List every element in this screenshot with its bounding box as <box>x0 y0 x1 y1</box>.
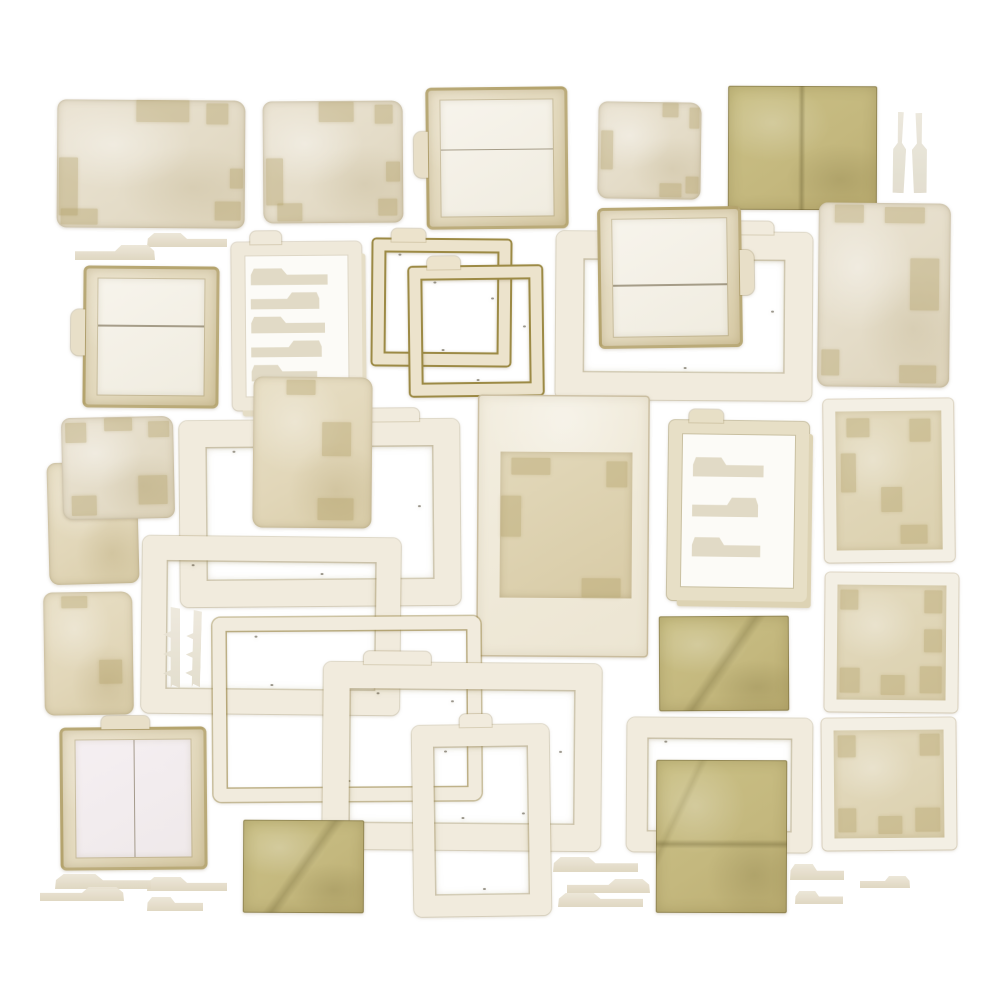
tape-patch <box>689 107 700 128</box>
panel-divider <box>614 284 727 287</box>
distress-speck <box>559 751 562 753</box>
distress-speck <box>444 751 447 753</box>
tape-patch <box>230 168 243 189</box>
tape-patch <box>685 176 699 194</box>
tape-patch <box>840 667 860 692</box>
tape-patch <box>60 208 98 225</box>
distress-speck <box>523 325 526 327</box>
tape-patch <box>138 475 168 504</box>
tab-strip-bc-2 <box>567 879 650 893</box>
tape-patch <box>910 419 931 441</box>
distress-speck <box>418 505 421 507</box>
folder-frame-center <box>597 206 743 349</box>
tab-strip-bc-3 <box>558 893 643 907</box>
distress-speck <box>482 887 485 889</box>
tape-patch <box>378 198 398 215</box>
distress-speck <box>684 367 687 369</box>
tape-patch <box>881 487 902 512</box>
tape-patch <box>916 807 940 831</box>
distress-speck <box>434 282 437 284</box>
tape-patch <box>581 578 621 597</box>
distress-speck <box>377 692 380 694</box>
tape-patch <box>375 104 393 124</box>
folder-frame-bottom-left <box>59 726 207 870</box>
tape-patch <box>277 204 302 221</box>
tape-patch <box>846 418 870 438</box>
tape-patch <box>72 495 97 516</box>
tape-patch <box>838 736 856 758</box>
tape-patch <box>924 629 942 652</box>
tape-patch <box>318 498 354 521</box>
tab-strip-upper-2 <box>75 245 155 260</box>
tape-patch <box>839 808 857 832</box>
tape-patch <box>910 258 940 310</box>
tape-patch <box>601 130 614 169</box>
panel-divider <box>98 325 205 327</box>
framed-card-1 <box>823 398 955 562</box>
tape-patch <box>206 103 229 125</box>
tab-strip-br-2 <box>795 891 843 904</box>
olive-sheet-large <box>656 760 788 913</box>
panel-divider <box>441 148 553 151</box>
gold-frame-2 <box>409 266 543 396</box>
tape-patch <box>662 103 679 117</box>
slim-strip-2 <box>911 113 927 193</box>
distress-speck <box>233 451 236 453</box>
card-portrait-3 <box>43 591 134 715</box>
distress-speck <box>477 379 480 381</box>
distress-speck <box>398 254 401 256</box>
tape-patch <box>841 453 856 492</box>
framed-square-2 <box>821 717 956 850</box>
ephemera-collage <box>0 0 1000 1000</box>
tab-strip-bc-1 <box>553 857 638 872</box>
folder-inner-panel <box>613 219 728 337</box>
tape-patch <box>66 423 87 444</box>
distress-speck <box>771 311 774 313</box>
card-square-1 <box>597 101 701 199</box>
tape-patch <box>511 457 551 475</box>
ghost-file-tab <box>251 339 322 358</box>
tape-patch <box>924 590 942 613</box>
slim-strip-1 <box>892 112 908 193</box>
olive-square-1 <box>243 820 364 914</box>
ghost-file-tab <box>251 266 328 285</box>
tab-strip-upper-1 <box>147 233 227 247</box>
tape-patch <box>59 157 78 216</box>
tape-patch <box>386 162 400 182</box>
ghost-file-tab <box>692 535 761 557</box>
tape-patch <box>136 100 189 122</box>
tape-patch <box>104 418 132 432</box>
ghost-file-tab <box>251 314 325 333</box>
tape-patch <box>900 525 928 545</box>
tape-patch <box>319 102 354 122</box>
tall-frame-1 <box>412 724 552 917</box>
ghost-file-tab <box>693 455 764 478</box>
folder-square-left <box>61 416 175 520</box>
ghost-file-tab <box>251 290 320 309</box>
tape-patch <box>501 495 521 536</box>
card-portrait-1 <box>817 202 951 387</box>
tape-patch <box>606 461 627 487</box>
tape-patch <box>61 596 88 609</box>
tape-patch <box>885 207 925 224</box>
folder-frame-left <box>82 265 219 408</box>
tape-patch <box>148 421 168 438</box>
distress-speck <box>255 635 258 637</box>
distress-speck <box>665 740 668 742</box>
tape-patch <box>899 365 936 384</box>
card-portrait-2 <box>252 376 372 528</box>
tape-patch <box>659 184 682 198</box>
tab-strip-bl-4 <box>147 897 203 911</box>
folder-inner-panel <box>75 739 192 858</box>
tape-patch <box>878 816 902 833</box>
polaroid-frame <box>476 394 650 657</box>
folder-inner-panel <box>97 278 205 396</box>
tab-strip-bl-2 <box>40 887 124 901</box>
tape-patch <box>841 589 859 610</box>
tab-strip-bl-1 <box>55 874 151 889</box>
tape-patch <box>880 675 904 696</box>
card-landscape-1 <box>57 99 246 228</box>
tab-strip-br-3 <box>860 876 910 888</box>
framed-square-1 <box>824 572 958 712</box>
tape-patch <box>287 380 316 395</box>
olive-folded-sheet <box>728 86 877 211</box>
folder-frame-top <box>425 86 568 229</box>
tape-patch <box>919 666 941 694</box>
tab-strip-bl-3 <box>147 877 227 891</box>
tab-strip-br-1 <box>790 864 844 880</box>
ghost-file-tab <box>692 495 758 517</box>
tape-patch <box>99 659 122 684</box>
olive-square-2 <box>659 616 789 712</box>
photo-area <box>499 452 632 599</box>
tape-patch <box>266 159 283 205</box>
folder-inner-panel <box>441 99 554 217</box>
card-landscape-2 <box>263 101 404 224</box>
tape-patch <box>919 734 939 756</box>
tape-patch <box>322 422 351 455</box>
tape-patch <box>835 204 864 223</box>
panel-divider <box>133 740 136 858</box>
distress-speck <box>522 812 525 814</box>
tape-patch <box>821 350 840 376</box>
distress-speck <box>192 564 195 566</box>
tape-patch <box>215 202 241 221</box>
tab-pocket-sheet-2 <box>667 420 809 602</box>
